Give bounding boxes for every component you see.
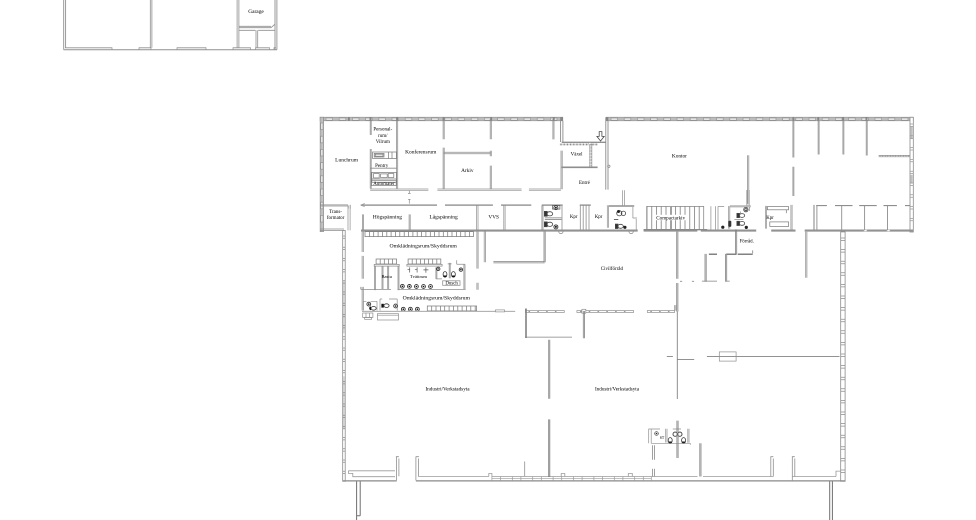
svg-text:Kpr: Kpr <box>595 215 603 220</box>
svg-text:Arkiv: Arkiv <box>461 168 474 174</box>
svg-text:Compactarkiv: Compactarkiv <box>656 215 685 221</box>
svg-text:Dusch: Dusch <box>445 282 458 287</box>
svg-text:Lunchrum: Lunchrum <box>335 157 359 163</box>
svg-text:Kpr: Kpr <box>570 215 578 220</box>
svg-text:Industri/Verkstadsyta: Industri/Verkstadsyta <box>595 387 640 393</box>
svg-text:rum/: rum/ <box>378 134 388 139</box>
svg-text:Konferensrum: Konferensrum <box>405 149 437 156</box>
svg-text:Garage: Garage <box>248 9 264 15</box>
svg-text:Kpr: Kpr <box>766 216 774 221</box>
svg-text:Personal-: Personal- <box>373 127 392 132</box>
svg-text:Vilrum: Vilrum <box>376 140 390 145</box>
svg-text:Tvättrum: Tvättrum <box>410 274 428 279</box>
svg-text:formator: formator <box>327 216 345 221</box>
svg-text:Automater: Automater <box>373 182 395 187</box>
svg-text:Omklädningsrum/Skyddsrum: Omklädningsrum/Skyddsrum <box>390 244 458 250</box>
svg-text:VVS: VVS <box>488 214 499 220</box>
svg-text:Civilförråd: Civilförråd <box>601 266 624 272</box>
svg-text:Industri/Verkstadsyta: Industri/Verkstadsyta <box>425 387 470 393</box>
svg-text:ST: ST <box>660 436 665 440</box>
svg-text:Högspänning: Högspänning <box>373 214 403 220</box>
svg-text:Växel: Växel <box>571 152 584 157</box>
svg-text:Förråd.: Förråd. <box>740 239 754 245</box>
svg-text:Lågspänning: Lågspänning <box>429 213 458 220</box>
svg-text:Trans-: Trans- <box>329 210 342 215</box>
svg-text:Bastu: Bastu <box>381 274 392 279</box>
svg-text:Omklädningsrum/Skyddsrum: Omklädningsrum/Skyddsrum <box>403 295 471 301</box>
svg-text:Entré: Entré <box>579 181 591 186</box>
svg-text:Kontor: Kontor <box>672 153 687 159</box>
